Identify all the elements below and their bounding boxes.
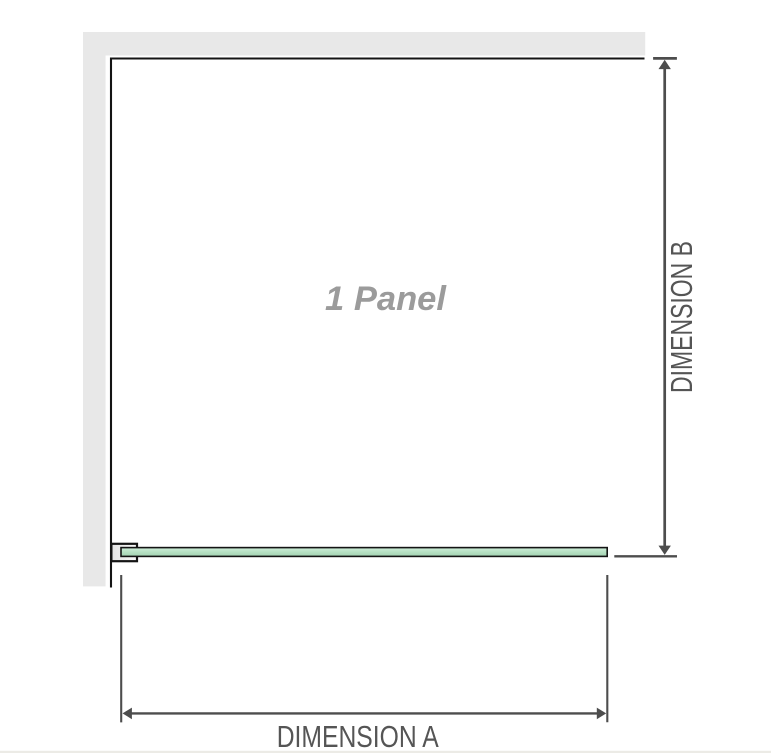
svg-text:DIMENSION B: DIMENSION B	[664, 241, 699, 393]
svg-text:1 Panel: 1 Panel	[325, 280, 448, 318]
svg-text:DIMENSION A: DIMENSION A	[277, 719, 439, 754]
